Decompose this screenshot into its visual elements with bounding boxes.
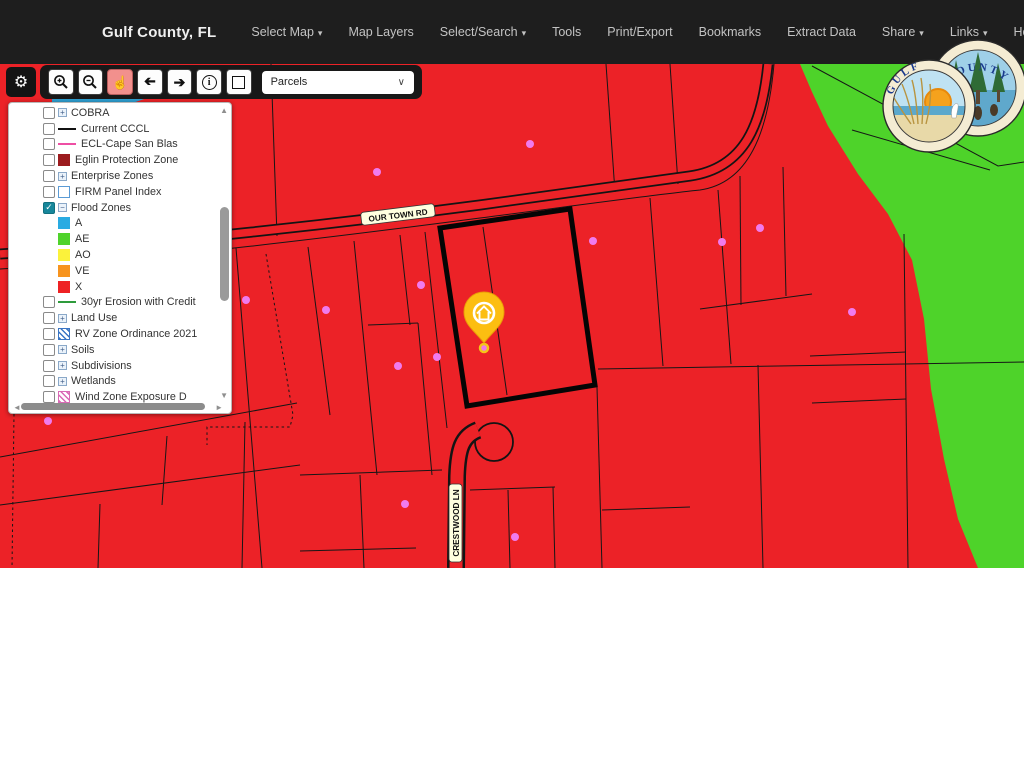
gulf-county-logo: COUNTY GULF <box>866 36 1024 160</box>
layer-label[interactable]: COBRA <box>71 107 109 119</box>
layer-label: X <box>75 281 82 293</box>
layer-label[interactable]: Eglin Protection Zone <box>75 154 178 166</box>
zoom-out-button[interactable] <box>78 69 104 95</box>
legend-swatch-fill <box>58 265 70 277</box>
layer-item-ae: AE <box>9 231 231 247</box>
panel-scroll-left-icon[interactable]: ◄ <box>13 403 21 412</box>
layer-checkbox[interactable] <box>43 360 55 372</box>
arrow-right-icon: ➔ <box>174 75 186 89</box>
layer-item-current-cccl: Current CCCL <box>9 121 231 137</box>
layer-label: AO <box>75 249 91 261</box>
zoom-in-button[interactable] <box>48 69 74 95</box>
pan-tool-button[interactable]: ☝ <box>107 69 133 95</box>
legend-swatch-fill <box>58 217 70 229</box>
layer-label[interactable]: Wetlands <box>71 375 116 387</box>
expand-plus-icon[interactable]: + <box>58 108 67 117</box>
menu-item-extract-data[interactable]: Extract Data <box>787 25 856 39</box>
panel-vertical-scrollbar[interactable] <box>220 207 229 301</box>
previous-extent-button[interactable]: ➔ <box>137 69 163 95</box>
legend-swatch-fill <box>58 249 70 261</box>
layer-item-ao: AO <box>9 247 231 263</box>
settings-button[interactable]: ⚙ <box>6 67 36 97</box>
layer-label[interactable]: ECL-Cape San Blas <box>81 138 178 150</box>
menu-item-select-search[interactable]: Select/Search▾ <box>440 25 526 39</box>
layer-checkbox[interactable] <box>43 154 55 166</box>
layer-checkbox[interactable] <box>43 123 55 135</box>
expand-plus-icon[interactable]: + <box>58 361 67 370</box>
layer-select-dropdown[interactable]: Parcels ∨ <box>262 71 414 94</box>
chevron-down-icon: ∨ <box>398 77 405 88</box>
layer-label: A <box>75 217 82 229</box>
legend-swatch-hatch <box>58 328 70 340</box>
panel-scroll-up-icon[interactable]: ▲ <box>220 106 228 115</box>
map-toolbar: ☝ ➔ ➔ i Parcels ∨ <box>40 65 422 99</box>
caret-down-icon: ▾ <box>522 28 527 38</box>
expand-plus-icon[interactable]: + <box>58 172 67 181</box>
layer-item-enterprise-zones: +Enterprise Zones <box>9 168 231 184</box>
caret-down-icon: ▾ <box>318 28 323 38</box>
layer-item-ve: VE <box>9 263 231 279</box>
menu-item-select-map[interactable]: Select Map▾ <box>251 25 322 39</box>
menu-item-map-layers[interactable]: Map Layers <box>348 25 413 39</box>
layer-item-ecl-cape-san-blas: ECL-Cape San Blas <box>9 137 231 153</box>
layer-item-land-use: +Land Use <box>9 310 231 326</box>
layers-panel: +COBRACurrent CCCLECL-Cape San BlasEglin… <box>8 102 232 414</box>
layer-label[interactable]: FIRM Panel Index <box>75 186 161 198</box>
layer-label[interactable]: Enterprise Zones <box>71 170 153 182</box>
layer-item-eglin-protection-zone: Eglin Protection Zone <box>9 152 231 168</box>
gear-icon: ⚙ <box>14 72 28 92</box>
layer-label[interactable]: Flood Zones <box>71 202 131 214</box>
layer-item-30yr-erosion-with-credit: 30yr Erosion with Credit <box>9 295 231 311</box>
layer-label[interactable]: Land Use <box>71 312 117 324</box>
info-icon: i <box>202 75 217 90</box>
collapse-minus-icon[interactable]: − <box>58 203 67 212</box>
layer-checkbox[interactable] <box>43 186 55 198</box>
layer-checkbox[interactable] <box>43 328 55 340</box>
layer-checkbox[interactable] <box>43 138 55 150</box>
layer-checkbox[interactable]: ✓ <box>43 202 55 214</box>
layer-label[interactable]: 30yr Erosion with Credit <box>81 296 196 308</box>
layer-item-wetlands: +Wetlands <box>9 374 231 390</box>
legend-swatch-line <box>58 143 76 145</box>
layer-checkbox[interactable] <box>43 170 55 182</box>
layer-item-subdivisions: +Subdivisions <box>9 358 231 374</box>
arrow-left-icon: ➔ <box>144 75 156 89</box>
menu-item-print-export[interactable]: Print/Export <box>607 25 672 39</box>
app-title: Gulf County, FL <box>102 24 216 41</box>
layer-item-rv-zone-ordinance-2021: RV Zone Ordinance 2021 <box>9 326 231 342</box>
layer-checkbox[interactable] <box>43 312 55 324</box>
layer-checkbox[interactable] <box>43 107 55 119</box>
legend-swatch-fill <box>58 233 70 245</box>
layer-item-a: A <box>9 216 231 232</box>
panel-horizontal-scrollbar: ◄ ► <box>9 402 231 412</box>
cul-de-sac-bulb <box>475 423 513 461</box>
layer-label[interactable]: RV Zone Ordinance 2021 <box>75 328 197 340</box>
next-extent-button[interactable]: ➔ <box>167 69 193 95</box>
layer-item-x: X <box>9 279 231 295</box>
zoom-in-icon <box>53 74 69 90</box>
layer-checkbox[interactable] <box>43 296 55 308</box>
app-window: OUR TOWN RD CRESTWOOD LN Gulf County, FL… <box>0 0 1024 768</box>
legend-swatch-line <box>58 128 76 130</box>
expand-plus-icon[interactable]: + <box>58 314 67 323</box>
layer-checkbox[interactable] <box>43 344 55 356</box>
layer-item-cobra: +COBRA <box>9 105 231 121</box>
box-select-button[interactable] <box>226 69 252 95</box>
legend-swatch-line <box>58 301 76 303</box>
panel-scroll-right-icon[interactable]: ► <box>215 403 223 412</box>
layer-label[interactable]: Subdivisions <box>71 360 132 372</box>
layer-label: VE <box>75 265 89 277</box>
layer-item-flood-zones: ✓−Flood Zones <box>9 200 231 216</box>
road-label-crestwood: CRESTWOOD LN <box>449 484 462 562</box>
layers-panel-list: +COBRACurrent CCCLECL-Cape San BlasEglin… <box>9 105 231 405</box>
menu-item-bookmarks[interactable]: Bookmarks <box>699 25 762 39</box>
identify-button[interactable]: i <box>196 69 222 95</box>
layer-label[interactable]: Current CCCL <box>81 123 149 135</box>
pan-hand-icon: ☝ <box>112 76 128 89</box>
expand-plus-icon[interactable]: + <box>58 377 67 386</box>
layer-checkbox[interactable] <box>43 375 55 387</box>
zoom-out-icon <box>82 74 98 90</box>
svg-text:CRESTWOOD LN: CRESTWOOD LN <box>452 489 461 556</box>
layer-item-soils: +Soils <box>9 342 231 358</box>
menu-item-tools[interactable]: Tools <box>552 25 581 39</box>
legend-swatch-fill <box>58 154 70 166</box>
panel-horizontal-thumb[interactable] <box>21 403 205 410</box>
expand-plus-icon[interactable]: + <box>58 345 67 354</box>
marker-base-dot <box>480 344 488 352</box>
rectangle-select-icon <box>232 76 245 89</box>
layer-label: AE <box>75 233 89 245</box>
legend-swatch-fill <box>58 281 70 293</box>
layer-label[interactable]: Soils <box>71 344 94 356</box>
dropdown-selected-value: Parcels <box>271 76 308 88</box>
layer-item-firm-panel-index: FIRM Panel Index <box>9 184 231 200</box>
panel-scroll-down-icon[interactable]: ▼ <box>220 391 228 400</box>
legend-swatch-box <box>58 186 70 198</box>
